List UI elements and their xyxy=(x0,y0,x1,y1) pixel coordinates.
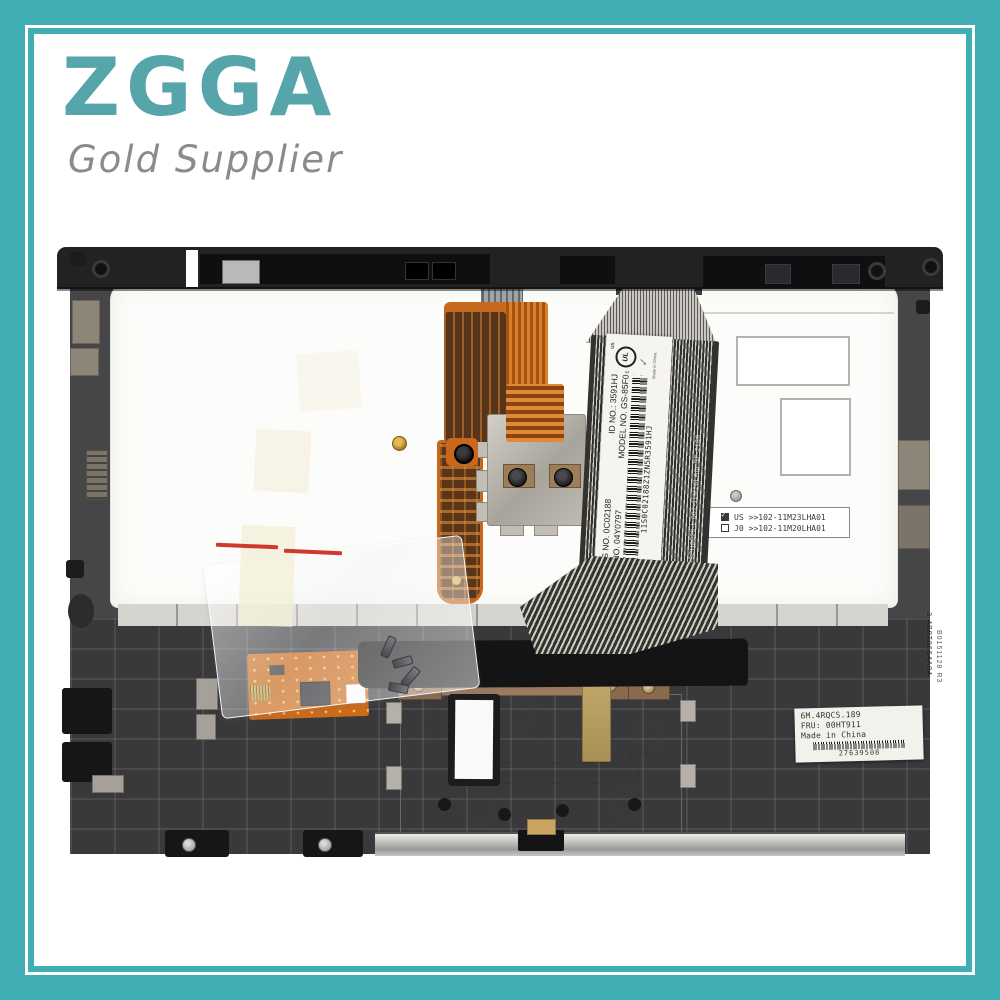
left-grill-pad xyxy=(86,450,108,500)
ul-mark-icon: UL xyxy=(615,346,637,368)
tape-patch-2 xyxy=(253,429,311,494)
speaker-cutout-1 xyxy=(62,688,112,734)
plate-tab-left-2 xyxy=(386,766,402,790)
bracket-screw-left xyxy=(508,468,527,487)
mold-number-text: #2-1 xyxy=(628,748,648,759)
plate-hole-2 xyxy=(498,808,511,821)
rail-screw-1 xyxy=(182,838,196,852)
plate-tab-right-1 xyxy=(680,700,696,722)
fru-label: 6M.4RQCS.189 FRU: 00HT911 Made in China … xyxy=(794,705,923,762)
compat-row-1-value: >>102-11M20LHA01 xyxy=(749,524,826,533)
blank-box-wide xyxy=(736,336,850,386)
rail-bracket-2 xyxy=(303,830,363,857)
bracket-screw-right xyxy=(554,468,573,487)
side-pad-2 xyxy=(196,714,216,740)
bezel-screw-hole-3 xyxy=(922,258,940,276)
bezel-black-connector-2 xyxy=(432,262,456,280)
ul-c-text: c xyxy=(625,370,631,373)
bezel-black-connector-1 xyxy=(405,262,429,280)
bezel-screw-hole-1 xyxy=(92,260,110,278)
gold-screw xyxy=(392,436,407,451)
side-pad-3 xyxy=(92,775,124,793)
small-screw xyxy=(730,490,742,502)
brand-logo: ZGGA xyxy=(62,48,337,128)
rail-bracket-1 xyxy=(165,830,229,857)
fru-label-barcode-number: 27639508 xyxy=(801,747,917,758)
rail-gold-contact xyxy=(527,819,556,835)
compat-row-0-checkbox xyxy=(721,513,729,521)
compat-label: US >>102-11M23LHA01 J0 >>102-11M20LHA01 xyxy=(708,507,850,538)
masking-tape xyxy=(238,525,295,627)
plate-hole-4 xyxy=(628,798,641,811)
emboss-right-text2: B0151128 R3 xyxy=(928,630,942,750)
ul-certification-zone: UL c us ✓ Made in China xyxy=(609,338,669,374)
flex-cable-fold xyxy=(506,384,564,442)
trackpoint-screw xyxy=(454,444,474,464)
bezel-cutout-2 xyxy=(560,256,615,284)
check-mark-icon: ✓ xyxy=(637,357,650,367)
brand-tagline: Gold Supplier xyxy=(68,138,343,182)
left-screw-post-top xyxy=(70,252,86,266)
ul-us-text: us xyxy=(610,342,616,349)
plate-hole-1 xyxy=(438,798,451,811)
compat-row-0: US >>102-11M23LHA01 xyxy=(721,513,849,522)
right-pad-1 xyxy=(898,440,930,490)
compat-row-1-code: J0 xyxy=(734,524,744,533)
compat-row-0-code: US xyxy=(734,513,744,522)
plate-emboss-circle-2 xyxy=(506,700,536,730)
compat-row-1: J0 >>102-11M20LHA01 xyxy=(721,524,849,533)
right-screw-post xyxy=(916,300,930,314)
tape-patch-1 xyxy=(296,350,362,412)
ribbon-parts-label: PARTS NO. 0C02188 ID NO.: 3591HJ FRU NO.… xyxy=(593,333,672,590)
white-sticker xyxy=(455,700,494,779)
bezel-block-1 xyxy=(765,264,791,284)
bezel-block-2 xyxy=(832,264,860,284)
plate-emboss-circle-4 xyxy=(462,792,496,826)
blank-box-square xyxy=(780,398,851,476)
compat-row-0-value: >>102-11M23LHA01 xyxy=(749,513,826,522)
plate-tab-right-2 xyxy=(680,764,696,788)
sheet-seam-line xyxy=(702,312,894,314)
bezel-silver-connector xyxy=(222,260,260,284)
left-oval-hole xyxy=(68,594,94,628)
plate-tab-left-1 xyxy=(386,702,402,724)
made-in-text: Made in China xyxy=(652,349,658,379)
bottom-metal-rail xyxy=(375,832,905,856)
plate-emboss-circle-1 xyxy=(418,708,450,740)
rail-screw-2 xyxy=(318,838,332,852)
compat-row-1-checkbox xyxy=(721,524,729,532)
product-photo-card: ZGGA Gold Supplier #2-1 6M.4RQCS.189 xyxy=(0,0,1000,1000)
left-pad-1 xyxy=(72,300,100,344)
bezel-screw-hole-2 xyxy=(868,262,886,280)
side-pad-1 xyxy=(196,678,218,710)
left-pad-2 xyxy=(70,348,99,376)
plate-emboss-circle-3 xyxy=(636,722,664,750)
bezel-white-notch xyxy=(186,250,198,287)
plate-hole-3 xyxy=(556,804,569,817)
right-pad-2 xyxy=(898,505,930,549)
left-screw-post-mid xyxy=(66,560,84,578)
